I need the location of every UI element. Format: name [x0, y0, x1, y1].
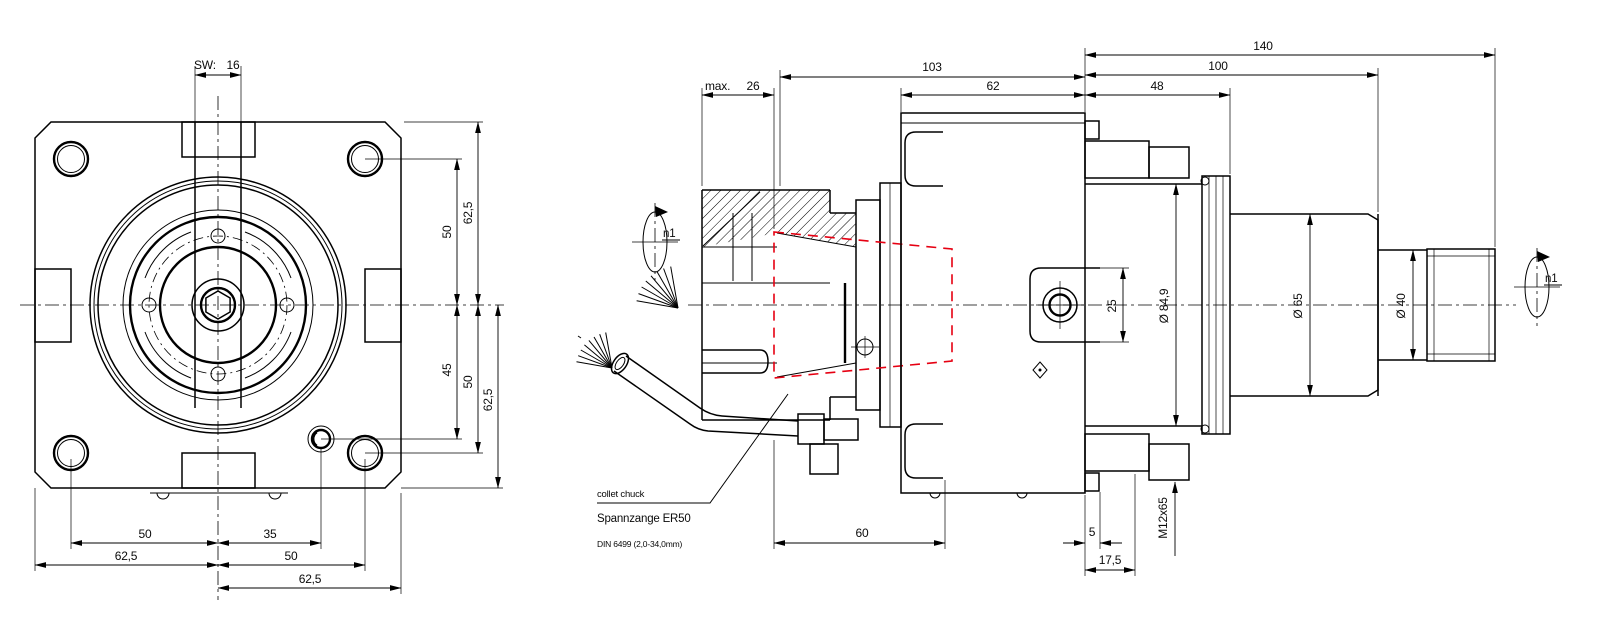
dim-m12x65: M12x65: [1156, 497, 1170, 539]
dim-b50r: 50: [285, 549, 298, 563]
technical-drawing: SW: 16 50 62,5 45 50 62,5 5: [0, 0, 1600, 625]
callout-line2: Spannzange ER50: [597, 513, 691, 525]
dim-b62-5r: 62,5: [299, 572, 322, 586]
dim-62-5-top: 62,5: [461, 201, 475, 224]
dim-dia-65: Ø 65: [1291, 293, 1305, 319]
dim-dia-84-9: Ø 84,9: [1157, 288, 1171, 323]
dim-sw-value: 16: [227, 58, 240, 72]
dim-dia-40: Ø 40: [1394, 293, 1408, 319]
dim-50-top: 50: [440, 225, 454, 238]
foot-right: [269, 493, 281, 499]
dim-103: 103: [922, 60, 942, 74]
chuck-slot: [702, 350, 768, 373]
rotation-label-right: n1: [1545, 273, 1557, 285]
dim-62-5-bottom: 62,5: [481, 388, 495, 411]
dim-17-5: 17,5: [1099, 553, 1122, 567]
callout-collet-chuck: collet chuck Spannzange ER50 DIN 6499 (2…: [597, 394, 788, 549]
dim-b35: 35: [264, 527, 277, 541]
dim-50-bottom: 50: [461, 375, 475, 388]
callout-line3: DIN 6499 (2,0-34,0mm): [597, 539, 682, 549]
callout-line1: collet chuck: [597, 489, 645, 500]
rotation-symbol-right: n1: [1514, 248, 1562, 326]
dim-b62-5l: 62,5: [115, 549, 138, 563]
side-view: n1 n1: [577, 39, 1563, 576]
tab-top: [182, 122, 255, 157]
dim-5: 5: [1089, 525, 1096, 539]
dim-max-value: 26: [747, 79, 760, 93]
rotation-symbol-left: n1: [632, 203, 680, 281]
dim-62: 62: [987, 79, 1000, 93]
drawing-canvas: SW: 16 50 62,5 45 50 62,5 5: [0, 0, 1600, 625]
dim-b50: 50: [139, 527, 152, 541]
dim-max-prefix: max.: [705, 79, 730, 93]
foot-left: [157, 493, 169, 499]
nozzle-fitting: [798, 414, 824, 444]
rear-mount-blocks: [1085, 121, 1189, 491]
dim-60: 60: [856, 526, 869, 540]
tab-bottom: [182, 453, 255, 488]
flange-tab-top: [905, 132, 943, 186]
gearbox-body: [901, 113, 1100, 498]
dim-45: 45: [440, 363, 454, 376]
rotation-label-left: n1: [663, 228, 675, 240]
flange-tab-bottom: [905, 424, 943, 478]
dim-100: 100: [1208, 59, 1228, 73]
dim-25: 25: [1105, 299, 1119, 312]
dim-48: 48: [1151, 79, 1164, 93]
extension-lines: [35, 122, 503, 594]
tab-right: [365, 269, 401, 342]
spray-icon-upper: [637, 267, 678, 308]
spray-icon-lower: [577, 333, 613, 369]
threaded-end: [1427, 249, 1495, 361]
dim-sw-prefix: SW:: [194, 58, 216, 72]
front-view: SW: 16 50 62,5 45 50 62,5 5: [20, 58, 504, 600]
dim-140: 140: [1253, 39, 1273, 53]
tab-left: [35, 269, 71, 342]
